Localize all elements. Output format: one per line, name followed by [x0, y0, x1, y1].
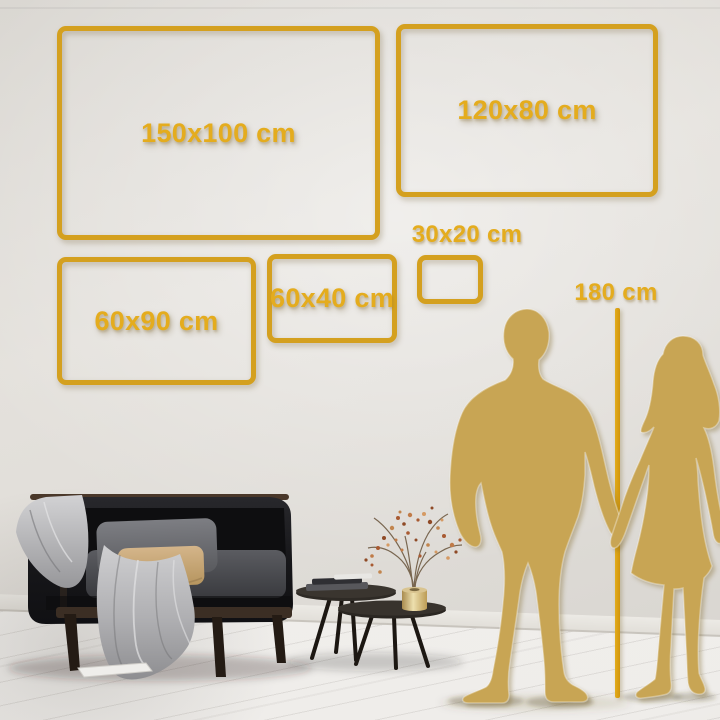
people-layer	[0, 0, 720, 720]
man-silhouette	[450, 309, 623, 703]
woman-silhouette	[610, 336, 720, 698]
size-guide-scene: 150x100 cm 120x80 cm 60x90 cm 60x40 cm 3…	[0, 0, 720, 720]
